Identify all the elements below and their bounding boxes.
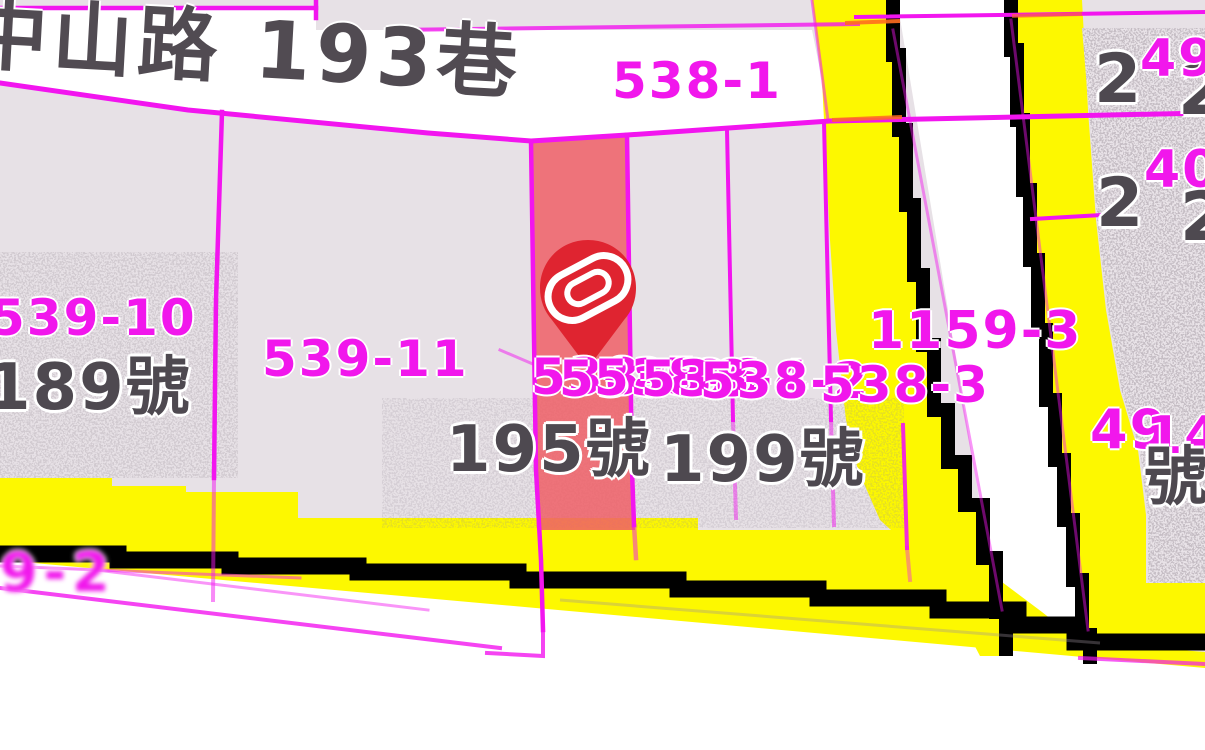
map-canvas[interactable]: [0, 0, 1205, 750]
speckle-texture-left: [0, 252, 238, 478]
speckle-texture-center: [382, 398, 904, 528]
